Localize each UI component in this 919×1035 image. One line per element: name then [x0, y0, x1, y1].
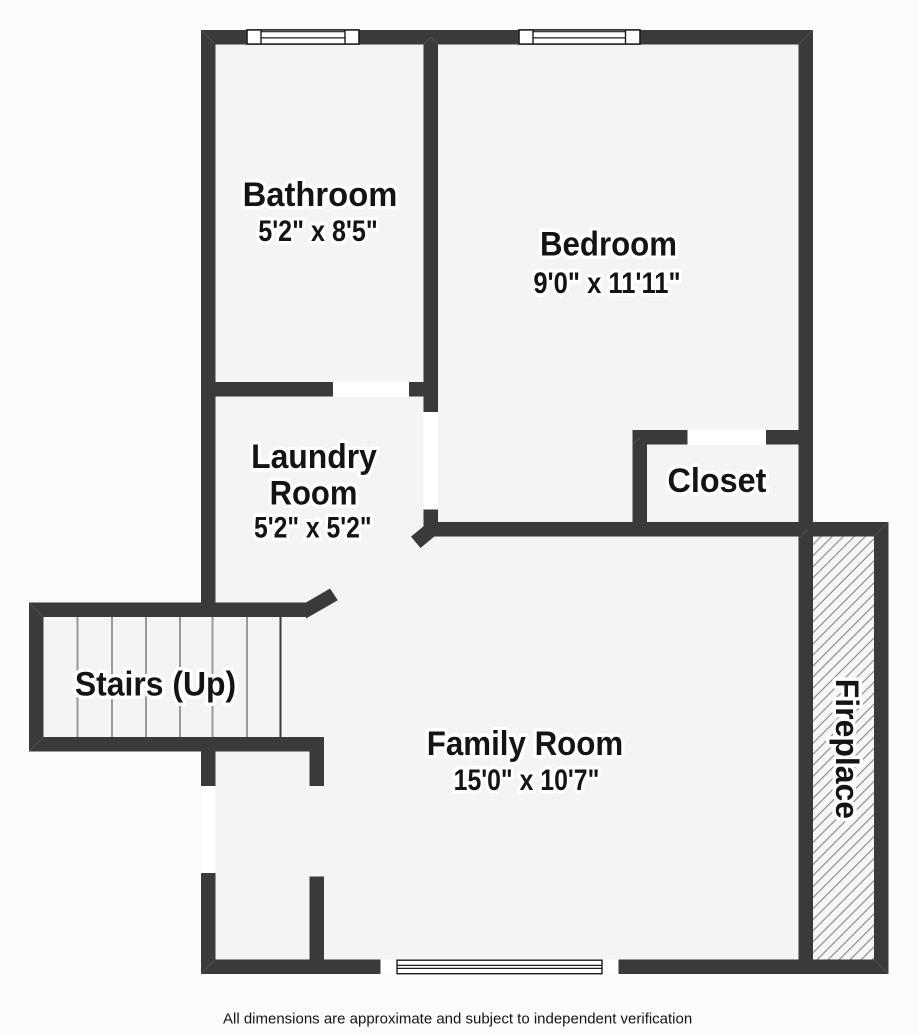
svg-text:Family Room: Family Room	[427, 725, 624, 763]
svg-text:Stairs (Up): Stairs (Up)	[75, 666, 236, 704]
svg-text:Room: Room	[270, 475, 358, 513]
svg-text:5'2" x 8'5": 5'2" x 8'5"	[258, 215, 378, 248]
svg-text:Fireplace: Fireplace	[829, 679, 865, 819]
svg-text:Laundry: Laundry	[251, 438, 377, 476]
svg-text:Closet: Closet	[668, 462, 767, 500]
svg-text:Bedroom: Bedroom	[540, 226, 677, 264]
svg-text:5'2" x 5'2": 5'2" x 5'2"	[254, 512, 372, 545]
svg-text:15'0" x 10'7": 15'0" x 10'7"	[454, 764, 600, 797]
svg-text:Bathroom: Bathroom	[243, 176, 398, 214]
svg-text:All dimensions are approximate: All dimensions are approximate and subje…	[223, 1011, 692, 1028]
svg-text:9'0" x 11'11": 9'0" x 11'11"	[533, 267, 680, 300]
